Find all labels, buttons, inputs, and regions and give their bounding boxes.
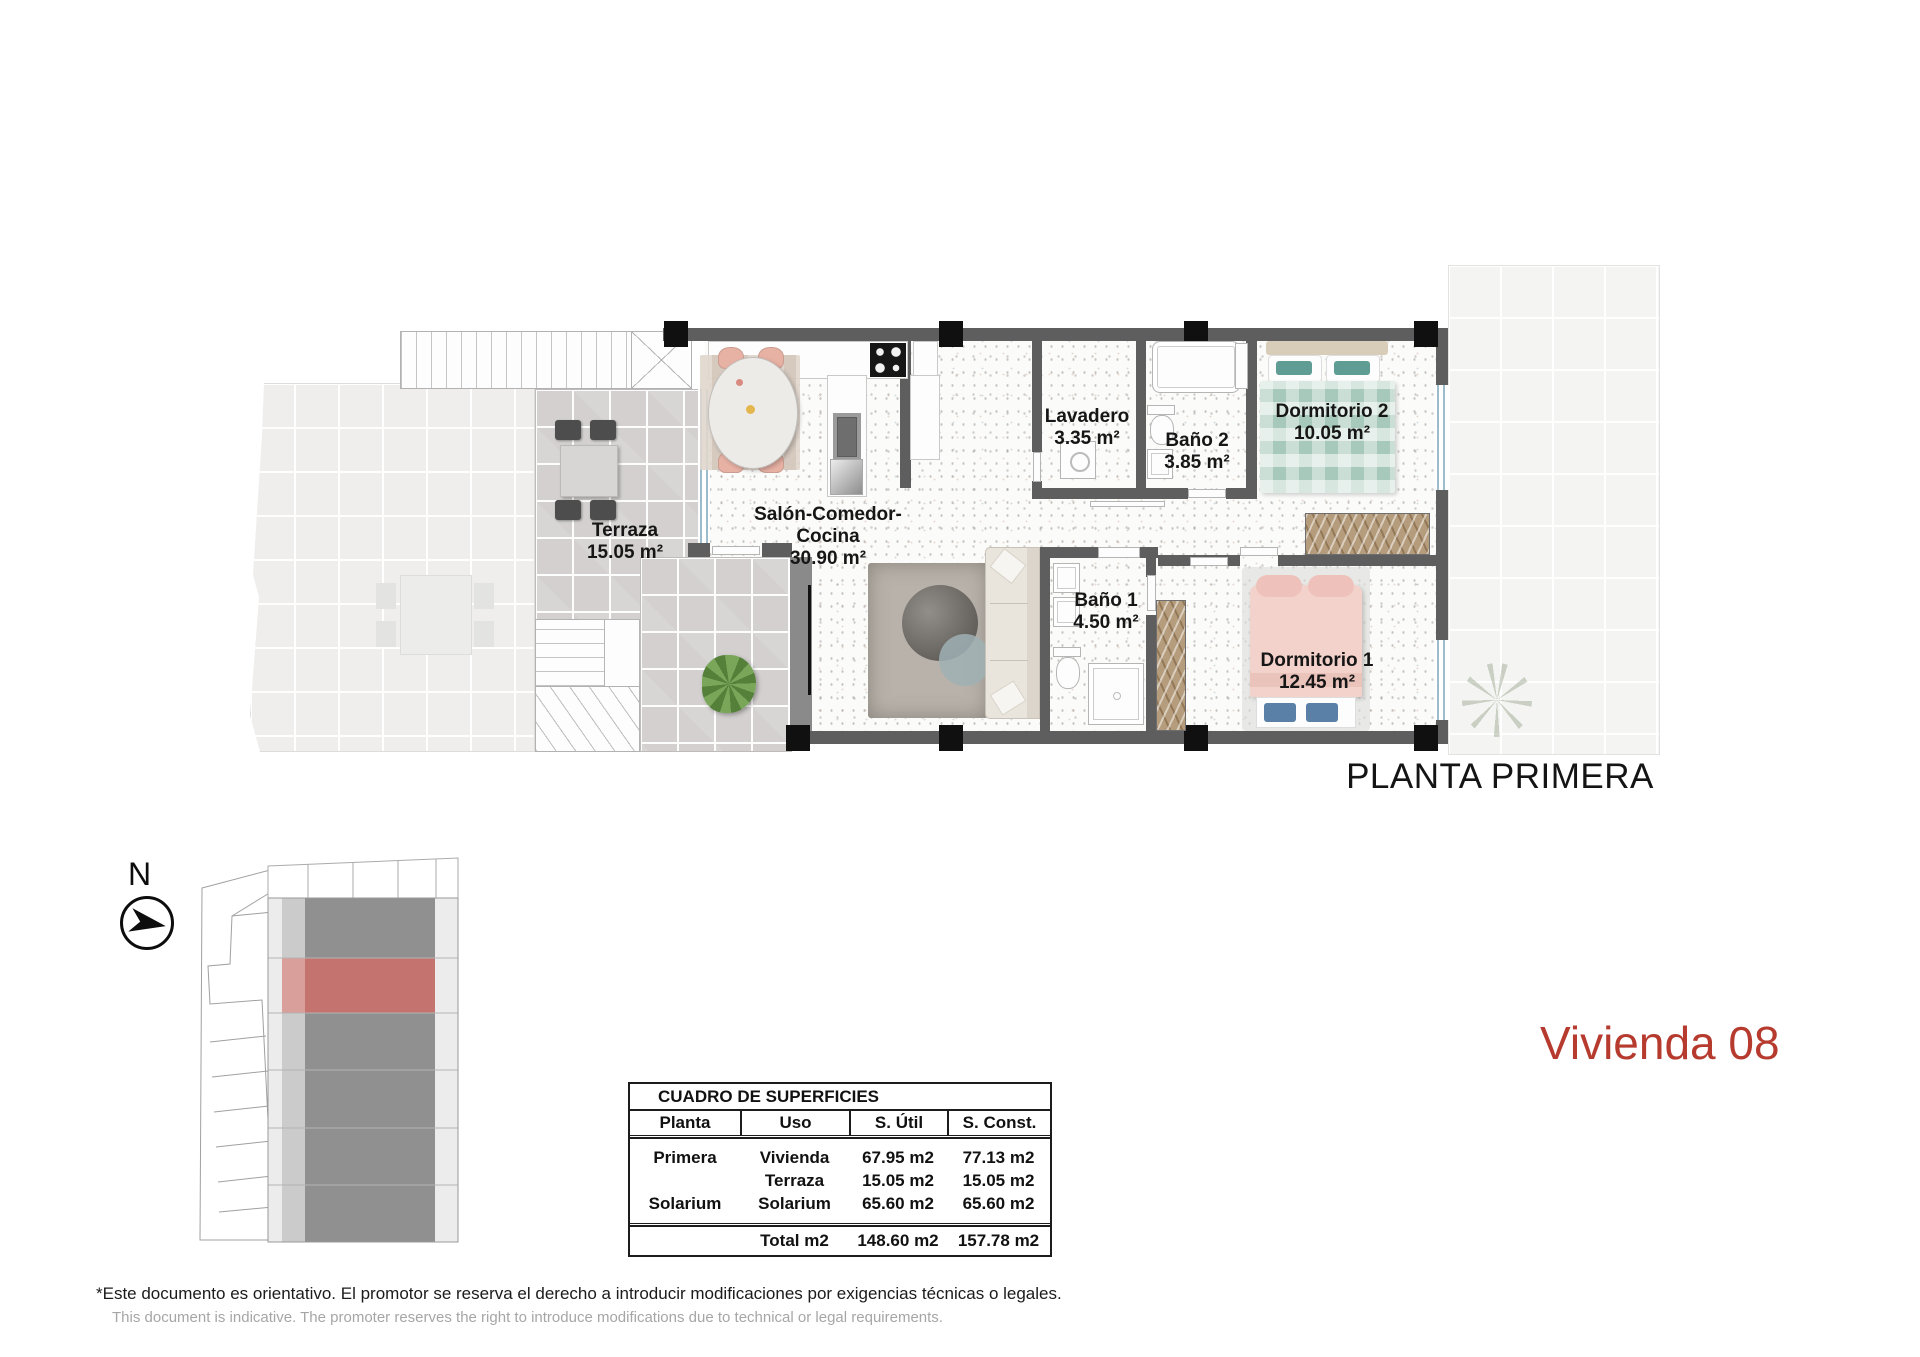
plan-title: PLANTA PRIMERA xyxy=(1330,757,1670,797)
ghost-chair xyxy=(376,583,396,609)
staircase-landing xyxy=(604,619,640,687)
room-label-salon: Salón-Comedor-Cocina 30.90 m² xyxy=(728,504,928,570)
wall-top xyxy=(663,328,1448,341)
door-leaf-lavadero xyxy=(1033,452,1041,482)
ghost-chair xyxy=(474,583,494,609)
site-plan xyxy=(140,852,470,1252)
window-dorm1 xyxy=(1435,640,1449,720)
col-const: S. Const. xyxy=(947,1111,1050,1135)
room-label-lavadero: Lavadero 3.35 m² xyxy=(1022,406,1152,450)
pillow-accent xyxy=(1276,361,1312,375)
unit-title: Vivienda 08 xyxy=(1540,1016,1860,1070)
surfaces-table-header: Planta Uso S. Útil S. Const. xyxy=(630,1111,1050,1135)
pillow-accent xyxy=(1264,703,1296,722)
sofa-backrest xyxy=(1027,548,1039,718)
table-decor xyxy=(746,405,755,414)
kitchen-sink xyxy=(833,413,861,461)
sofa-cushion xyxy=(990,603,1028,604)
terraza-chair xyxy=(555,420,581,440)
terraza-chair xyxy=(590,420,616,440)
sofa xyxy=(985,547,1040,719)
table-row: Primera Vivienda 67.95 m2 77.13 m2 xyxy=(630,1146,1050,1169)
room-label-bano2: Baño 2 3.85 m² xyxy=(1137,430,1257,474)
col-util: S. Útil xyxy=(849,1111,947,1135)
window-bano1 xyxy=(1098,547,1140,558)
sofa-pillow xyxy=(990,548,1027,584)
vanity-bano1 xyxy=(1053,563,1080,593)
pillow-accent xyxy=(1306,703,1338,722)
wall-bottom xyxy=(790,731,1448,744)
hall-shelf xyxy=(1090,501,1165,507)
surfaces-table-title: CUADRO DE SUPERFICIES xyxy=(630,1084,1050,1109)
headboard xyxy=(1266,341,1388,355)
toilet-tank-bano1 xyxy=(1053,647,1081,657)
wall-bano2-bottom-a xyxy=(1136,488,1188,499)
shower-drain xyxy=(1113,692,1121,700)
site-plan-highlight-light xyxy=(282,958,305,1013)
floor-plan: Terraza 15.05 m² Salón-Comedor-Cocina 30… xyxy=(250,255,1662,755)
site-plan-block xyxy=(268,858,458,1242)
pillar xyxy=(939,321,963,347)
terraza-floor-lower xyxy=(640,557,792,752)
room-label-dormitorio2: Dormitorio 2 10.05 m² xyxy=(1242,401,1422,445)
staircase-top xyxy=(400,331,632,389)
pillow xyxy=(1308,575,1354,597)
sofa-cushion xyxy=(990,660,1028,661)
wall-lavadero-bottom xyxy=(1032,488,1146,499)
site-plan-highlight xyxy=(305,958,435,1013)
wall-dorm2-bottom-b xyxy=(1278,555,1448,566)
pillow xyxy=(1256,575,1302,597)
ghost-chair xyxy=(376,621,396,647)
terraza-chair xyxy=(590,500,616,520)
neighbor-terrace-left xyxy=(250,383,535,752)
room-label-terraza: Terraza 15.05 m² xyxy=(555,520,695,564)
door-leaf-bano2 xyxy=(1188,489,1226,498)
pillow-accent xyxy=(1334,361,1370,375)
kitchen-appliance xyxy=(830,459,863,495)
pillar xyxy=(664,321,688,347)
pillar xyxy=(1414,725,1438,751)
surfaces-table: CUADRO DE SUPERFICIES Planta Uso S. Útil… xyxy=(628,1082,1052,1257)
door-panel xyxy=(1235,343,1248,389)
staircase-terraza xyxy=(535,619,605,687)
tv-icon xyxy=(808,585,811,695)
kitchen-counter-right xyxy=(910,375,940,460)
side-table xyxy=(939,634,991,686)
wall-bano1-right-a xyxy=(1146,557,1156,577)
total-label: Total m2 xyxy=(740,1227,849,1255)
sofa-pillow xyxy=(990,680,1026,715)
col-uso: Uso xyxy=(740,1111,849,1135)
disclaimer-en: This document is indicative. The promote… xyxy=(112,1309,943,1326)
hob-icon xyxy=(870,343,906,377)
terraza-table xyxy=(560,445,618,497)
wall-bano1-left xyxy=(1040,547,1050,733)
shower-bano1 xyxy=(1088,663,1144,725)
palm-tree-icon xyxy=(1462,663,1532,737)
table-row: Terraza 15.05 m2 15.05 m2 xyxy=(630,1169,1050,1192)
pillar xyxy=(1414,321,1438,347)
washer-drum xyxy=(1070,452,1090,472)
pillar xyxy=(1184,725,1208,751)
staircase-terraza-winder xyxy=(535,686,640,752)
table-total-row: Total m2 148.60 m2 157.78 m2 xyxy=(630,1227,1050,1255)
room-label-bano1: Baño 1 4.50 m² xyxy=(1046,590,1166,634)
table-decor xyxy=(736,379,743,386)
door-leaf-dorm1 xyxy=(1190,557,1228,566)
door-leaf-dorm2 xyxy=(1240,547,1278,556)
pillar xyxy=(939,725,963,751)
bathtub-bano2 xyxy=(1152,341,1240,393)
disclaimer-es: *Este documento es orientativo. El promo… xyxy=(96,1284,1062,1304)
wardrobe-dorm2 xyxy=(1305,513,1430,555)
terraza-chair xyxy=(555,500,581,520)
room-label-dormitorio1: Dormitorio 1 12.45 m² xyxy=(1227,650,1407,694)
col-planta: Planta xyxy=(630,1111,740,1135)
table-row: Solarium Solarium 65.60 m2 65.60 m2 xyxy=(630,1192,1050,1215)
toilet-bano1 xyxy=(1056,657,1080,689)
window-dorm2 xyxy=(1435,385,1449,490)
ghost-chair xyxy=(474,621,494,647)
site-plan-lots xyxy=(200,870,274,1240)
ghost-table xyxy=(400,575,472,655)
pillar xyxy=(786,725,810,751)
